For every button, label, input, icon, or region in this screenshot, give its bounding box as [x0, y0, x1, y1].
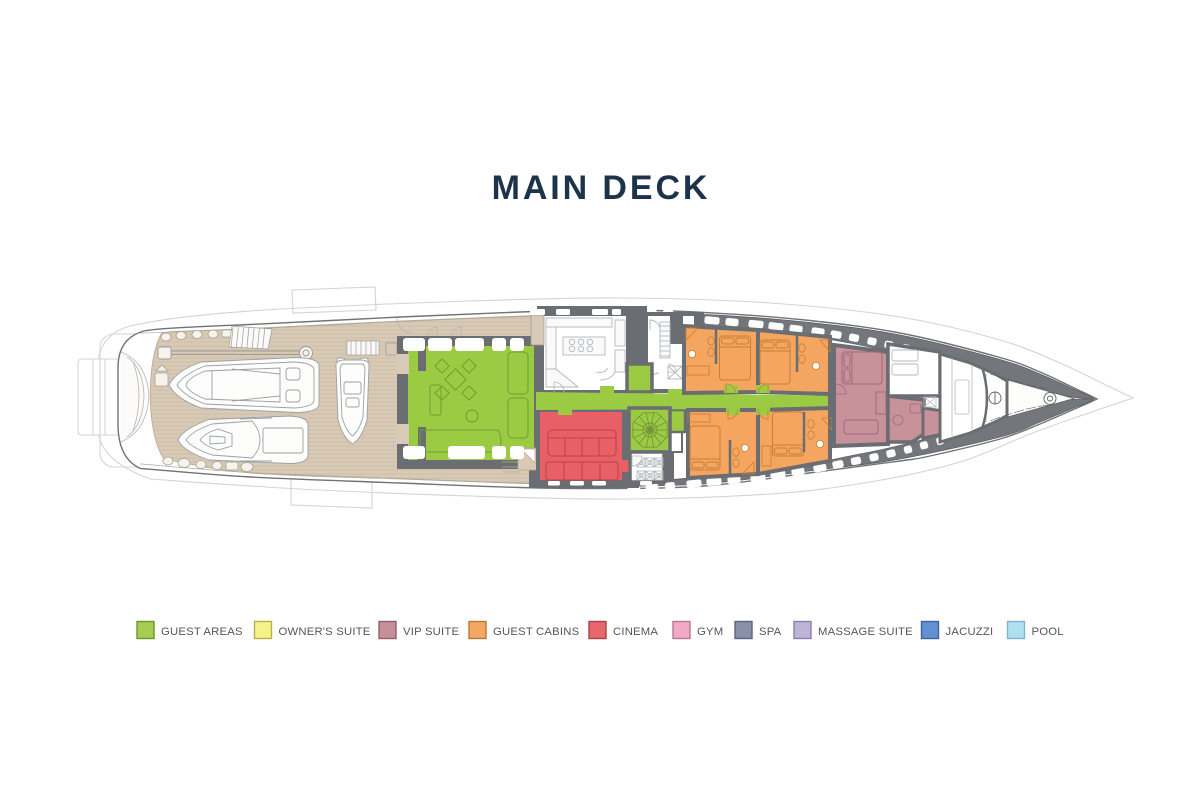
- svg-text:GUEST CABINS: GUEST CABINS: [493, 626, 580, 638]
- svg-text:GUEST AREAS: GUEST AREAS: [161, 626, 243, 638]
- svg-text:OWNER'S SUITE: OWNER'S SUITE: [279, 626, 371, 638]
- svg-text:VIP SUITE: VIP SUITE: [403, 626, 459, 638]
- svg-text:MAIN DECK: MAIN DECK: [492, 169, 711, 207]
- svg-text:MASSAGE SUITE: MASSAGE SUITE: [818, 626, 913, 638]
- svg-text:SPA: SPA: [759, 626, 782, 638]
- svg-text:CINEMA: CINEMA: [613, 626, 658, 638]
- svg-text:GYM: GYM: [697, 626, 723, 638]
- svg-text:JACUZZI: JACUZZI: [946, 626, 994, 638]
- svg-text:POOL: POOL: [1032, 626, 1064, 638]
